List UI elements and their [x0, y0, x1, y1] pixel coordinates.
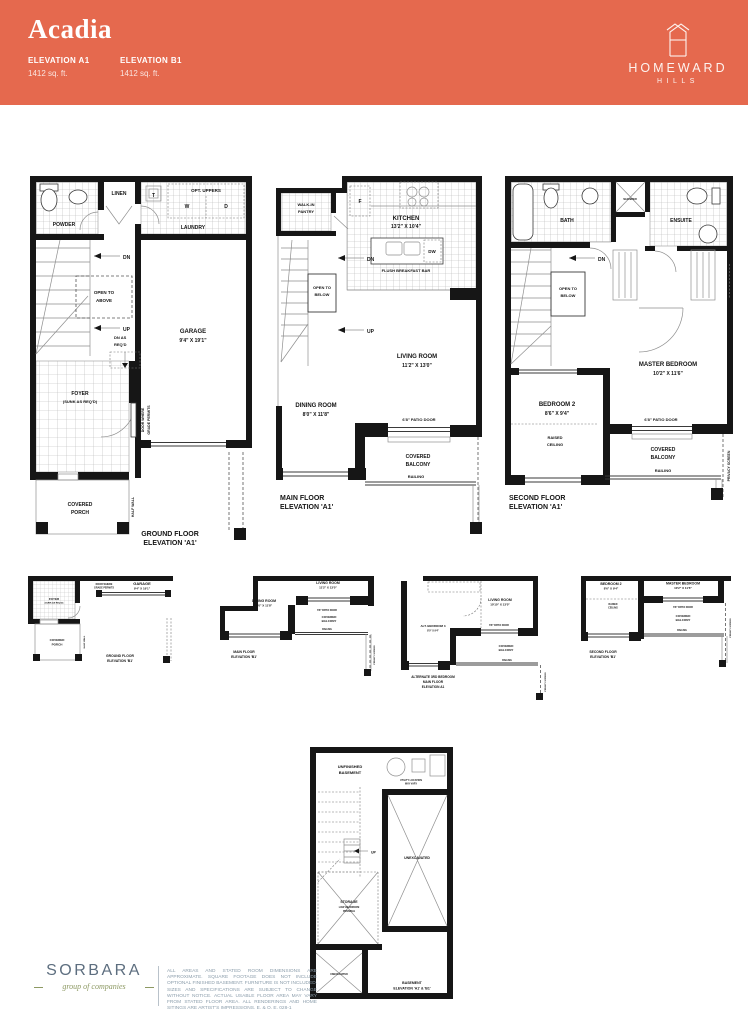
storage-line2: LOW HEADROOM: [339, 906, 359, 909]
railing-label: RAILING: [655, 468, 671, 473]
main-a1-caption-1: MAIN FLOOR: [280, 495, 324, 502]
brand-name: HOMEWARD: [618, 61, 738, 75]
bedroom2-dims: 8'6" X 9'4": [545, 411, 570, 417]
elevation-b1-info: ELEVATION B1 1412 sq. ft.: [120, 56, 182, 78]
dining-label: DINING ROOM: [295, 403, 336, 409]
patio-door-label: 6'8" PATIO DOOR: [489, 624, 509, 627]
patio-door-label: 6'8" PATIO DOOR: [644, 417, 677, 422]
balcony-line1: COVERED: [651, 447, 676, 453]
basement-caption-2: ELEVATION 'A1' & 'B1': [393, 987, 430, 991]
half-wall-label: HALF WALL: [83, 635, 86, 648]
master-dims: 10'2" X 11'6": [674, 586, 692, 590]
living-label: LIVING ROOM: [316, 581, 340, 585]
ground-b1-caption-1: GROUND FLOOR: [106, 654, 134, 658]
alt-walls: [401, 576, 538, 670]
living-dims: 11'2" X 13'0": [319, 586, 337, 590]
brand-sub: HILLS: [618, 78, 738, 85]
fridge-label: F: [358, 199, 361, 205]
foyer-label: FOYER: [49, 597, 60, 601]
alt-bedroom-label: ALT. BEDROOM 3: [420, 624, 445, 628]
open-below-line1: OPEN TO: [559, 286, 577, 291]
basement-labels: UNFINISHED BASEMENT UTILITY LOCATION MAY…: [330, 764, 431, 991]
dw-label: DW: [428, 249, 436, 254]
up-label: UP: [371, 851, 377, 855]
ground-a1-caption-1: GROUND FLOOR: [141, 531, 199, 538]
sorbara-tagline: group of companies: [36, 982, 152, 991]
ground-floor-a1-plan: POWDER LINEN T OPT. UPPERS W D LAUNDRY D…: [30, 176, 252, 561]
house-icon: [657, 18, 699, 58]
sorbara-logo: SORBARA group of companies: [36, 962, 152, 991]
garage-dims: 9'4" X 19'1": [134, 587, 151, 591]
dining-dims: 8'0" X 11'8": [256, 604, 273, 608]
open-above-line2: ABOVE: [96, 298, 112, 303]
second-b1-caption-2: ELEVATION 'B1': [590, 655, 616, 659]
main-b1-caption-2: ELEVATION 'B1': [231, 655, 257, 659]
main-b1-caption-1: MAIN FLOOR: [233, 650, 255, 654]
main-b1-labels: LIVING ROOM 11'2" X 13'0" DINING ROOM 8'…: [231, 581, 376, 665]
plan-title: Acadia: [28, 14, 112, 45]
living-label: LIVING ROOM: [397, 354, 437, 360]
patio-door-label: 6'8" PATIO DOOR: [402, 417, 435, 422]
storage-line3: POSSIBLE: [343, 910, 355, 913]
railing-label: RAILING: [408, 474, 424, 479]
main-b1-walls: [220, 576, 374, 640]
foyer-label: FOYER: [71, 391, 89, 397]
railing-label: RAILING: [677, 629, 687, 632]
pantry-line2: PANTRY: [298, 209, 314, 214]
bedroom2-dims: 8'6" X 9'4": [604, 587, 619, 591]
sorbara-name: SORBARA: [36, 962, 152, 980]
alt-caption-3: ELEVATION A1: [422, 685, 445, 689]
porch-line2: PORCH: [52, 643, 63, 647]
raised-ceiling-line2: CEILING: [608, 607, 618, 610]
dining-dims: 8'0" X 11'8": [303, 412, 330, 418]
master-dims: 10'2" X 11'6": [653, 371, 683, 377]
powder-label: POWDER: [53, 222, 76, 228]
laundry-tub-label: T: [152, 193, 155, 199]
balcony-line2: BALCONY: [676, 618, 691, 622]
second-floor-b1-plan: BEDROOM 2 8'6" X 9'4" MASTER BEDROOM 10'…: [573, 568, 743, 683]
second-a1-stairs: [511, 248, 595, 366]
alt-caption-2: MAIN FLOOR: [423, 680, 444, 684]
main-floor-b1-plan: LIVING ROOM 11'2" X 13'0" DINING ROOM 8'…: [208, 568, 384, 690]
second-a1-caption-2: ELEVATION 'A1': [509, 504, 563, 511]
dn-as-reqd-line2: REQ'D: [114, 342, 127, 347]
dining-label: DINING ROOM: [252, 599, 276, 603]
storage-line1: STORAGE: [340, 900, 358, 904]
utility-line2: MAY VARY: [405, 783, 417, 786]
privacy-screen-label: PRIVACY SCREEN: [544, 672, 547, 692]
open-below-line2: BELOW: [561, 293, 576, 298]
opt-uppers-label: OPT. UPPERS: [191, 188, 221, 193]
basement-walls: [310, 747, 453, 999]
balcony-line1: COVERED: [406, 454, 431, 460]
bedroom2-label: BEDROOM 2: [600, 582, 621, 586]
unexcavated-label: UNEXCAVATED: [404, 856, 430, 860]
patio-door-label: 6'8" PATIO DOOR: [317, 609, 337, 612]
kitchen-dims: 13'2" X 10'4": [391, 224, 422, 230]
ground-floor-b1-plan: DOOR WHERE GRADE PERMITS GARAGE 9'4" X 1…: [28, 568, 200, 680]
dn-label: DN: [123, 255, 131, 261]
master-label: MASTER BEDROOM: [666, 582, 700, 586]
garage-label: GARAGE: [133, 581, 151, 586]
shower-label: SHOWER: [623, 197, 637, 201]
laundry-label: LAUNDRY: [181, 225, 206, 231]
door-grade-line2: GRADE PERMITS: [147, 405, 151, 435]
up-label: UP: [123, 327, 131, 333]
bath-label: BATH: [560, 218, 574, 224]
privacy-screen-label: PRIVACY SCREEN: [373, 645, 376, 665]
bedroom2-label: BEDROOM 2: [539, 402, 576, 408]
open-below-line1: OPEN TO: [313, 285, 331, 290]
master-label: MASTER BEDROOM: [639, 362, 697, 368]
porch-line2: PORCH: [71, 510, 89, 516]
main-a1-caption-2: ELEVATION 'A1': [280, 504, 334, 511]
second-floor-a1-plan: BATH SHOWER ENSUITE DN OPEN TO BELOW MAS…: [505, 176, 733, 556]
porch-line1: COVERED: [50, 638, 66, 642]
raised-ceiling-line1: RAISED: [547, 435, 562, 440]
alt-caption-1: ALTERNATE 3RD BEDROOM: [411, 675, 455, 679]
balcony-line2: BALCONY: [322, 619, 337, 623]
main-a1-balcony: [283, 428, 482, 535]
alternate-3rd-bedroom-plan: LIVING ROOM 10'10" X 13'0" ALT. BEDROOM …: [393, 568, 565, 703]
ensuite-label: ENSUITE: [670, 218, 692, 224]
basement-caption-1: BASEMENT: [402, 981, 423, 985]
dn-label: DN: [367, 257, 375, 263]
elevation-a1-label: ELEVATION A1: [28, 56, 90, 65]
unfinished-line2: BASEMENT: [339, 770, 362, 775]
patio-door-label: 6'8" PATIO DOOR: [673, 606, 693, 609]
open-above-line1: OPEN TO: [94, 290, 115, 295]
raised-ceiling-line2: CEILING: [547, 442, 563, 447]
dryer-label: D: [224, 204, 228, 210]
living-dims: 11'2" X 13'0": [402, 363, 432, 369]
pantry-line1: WALK-IN: [297, 202, 314, 207]
porch-line1: COVERED: [68, 502, 93, 508]
floorplan-brochure-page: Acadia ELEVATION A1 1412 sq. ft. ELEVATI…: [0, 0, 748, 1024]
elevation-b1-area: 1412 sq. ft.: [120, 69, 182, 78]
half-wall-label: HALF WALL: [131, 496, 135, 517]
second-b1-caption-1: SECOND FLOOR: [589, 650, 617, 654]
railing-label: RAILING: [322, 628, 332, 631]
balcony-line2: BALCONY: [406, 462, 431, 468]
elevation-a1-info: ELEVATION A1 1412 sq. ft.: [28, 56, 90, 78]
dn-as-reqd-line1: DN AS: [114, 335, 127, 340]
second-b1-labels: BEDROOM 2 8'6" X 9'4" MASTER BEDROOM 10'…: [589, 582, 732, 660]
door-grade-line1: DOOR WHERE: [141, 407, 145, 432]
alt-bedroom-dims: 8'0" X 9'4": [427, 630, 439, 633]
up-label: UP: [367, 329, 375, 335]
privacy-screen-label: PRIVACY SCREEN: [727, 450, 731, 481]
legal-fine-print: ALL AREAS AND STATED ROOM DIMENSIONS ARE…: [167, 969, 317, 1013]
railing-label: RAILING: [502, 659, 512, 662]
privacy-screen-label: PRIVACY SCREEN: [729, 618, 732, 638]
garage-label: GARAGE: [180, 329, 206, 335]
garage-dims: 9'4" X 19'1": [179, 338, 207, 344]
foyer-note: (SUNK AS REQ'D): [63, 399, 98, 404]
ground-a1-caption-2: ELEVATION 'A1': [143, 540, 197, 547]
balcony-line2: BALCONY: [499, 648, 514, 652]
kitchen-label: KITCHEN: [393, 216, 420, 222]
breakfast-bar-label: FLUSH BREAKFAST BAR: [382, 268, 431, 273]
footer-divider: [158, 966, 159, 1006]
elevation-b1-label: ELEVATION B1: [120, 56, 182, 65]
homeward-hills-logo: HOMEWARD HILLS: [618, 18, 738, 85]
open-below-line2: BELOW: [315, 292, 330, 297]
elevation-a1-area: 1412 sq. ft.: [28, 69, 90, 78]
basement-plan: UNFINISHED BASEMENT UTILITY LOCATION MAY…: [310, 747, 462, 1005]
main-floor-a1-plan: WALK-IN PANTRY F KITCHEN 13'2" X 10'4" D…: [276, 176, 482, 561]
door-grade-line2: GRADE PERMITS: [94, 587, 114, 590]
balcony-line2: BALCONY: [651, 455, 676, 461]
unexcavated2-label: UNEXCAVATED: [330, 973, 348, 976]
second-a1-balcony: [511, 370, 723, 500]
unfinished-line1: UNFINISHED: [338, 764, 363, 769]
header-banner: Acadia ELEVATION A1 1412 sq. ft. ELEVATI…: [0, 0, 748, 105]
foyer-note: (SUNK AS REQ'D): [45, 602, 64, 605]
dn-label: DN: [598, 257, 606, 263]
washer-label: W: [185, 204, 190, 210]
ground-b1-caption-2: ELEVATION 'B1': [107, 659, 133, 663]
linen-label: LINEN: [112, 191, 127, 197]
living-label: LIVING ROOM: [488, 598, 512, 602]
second-a1-caption-1: SECOND FLOOR: [509, 495, 565, 502]
alt-labels: LIVING ROOM 10'10" X 13'0" ALT. BEDROOM …: [411, 598, 547, 692]
living-dims: 10'10" X 13'0": [490, 603, 510, 607]
